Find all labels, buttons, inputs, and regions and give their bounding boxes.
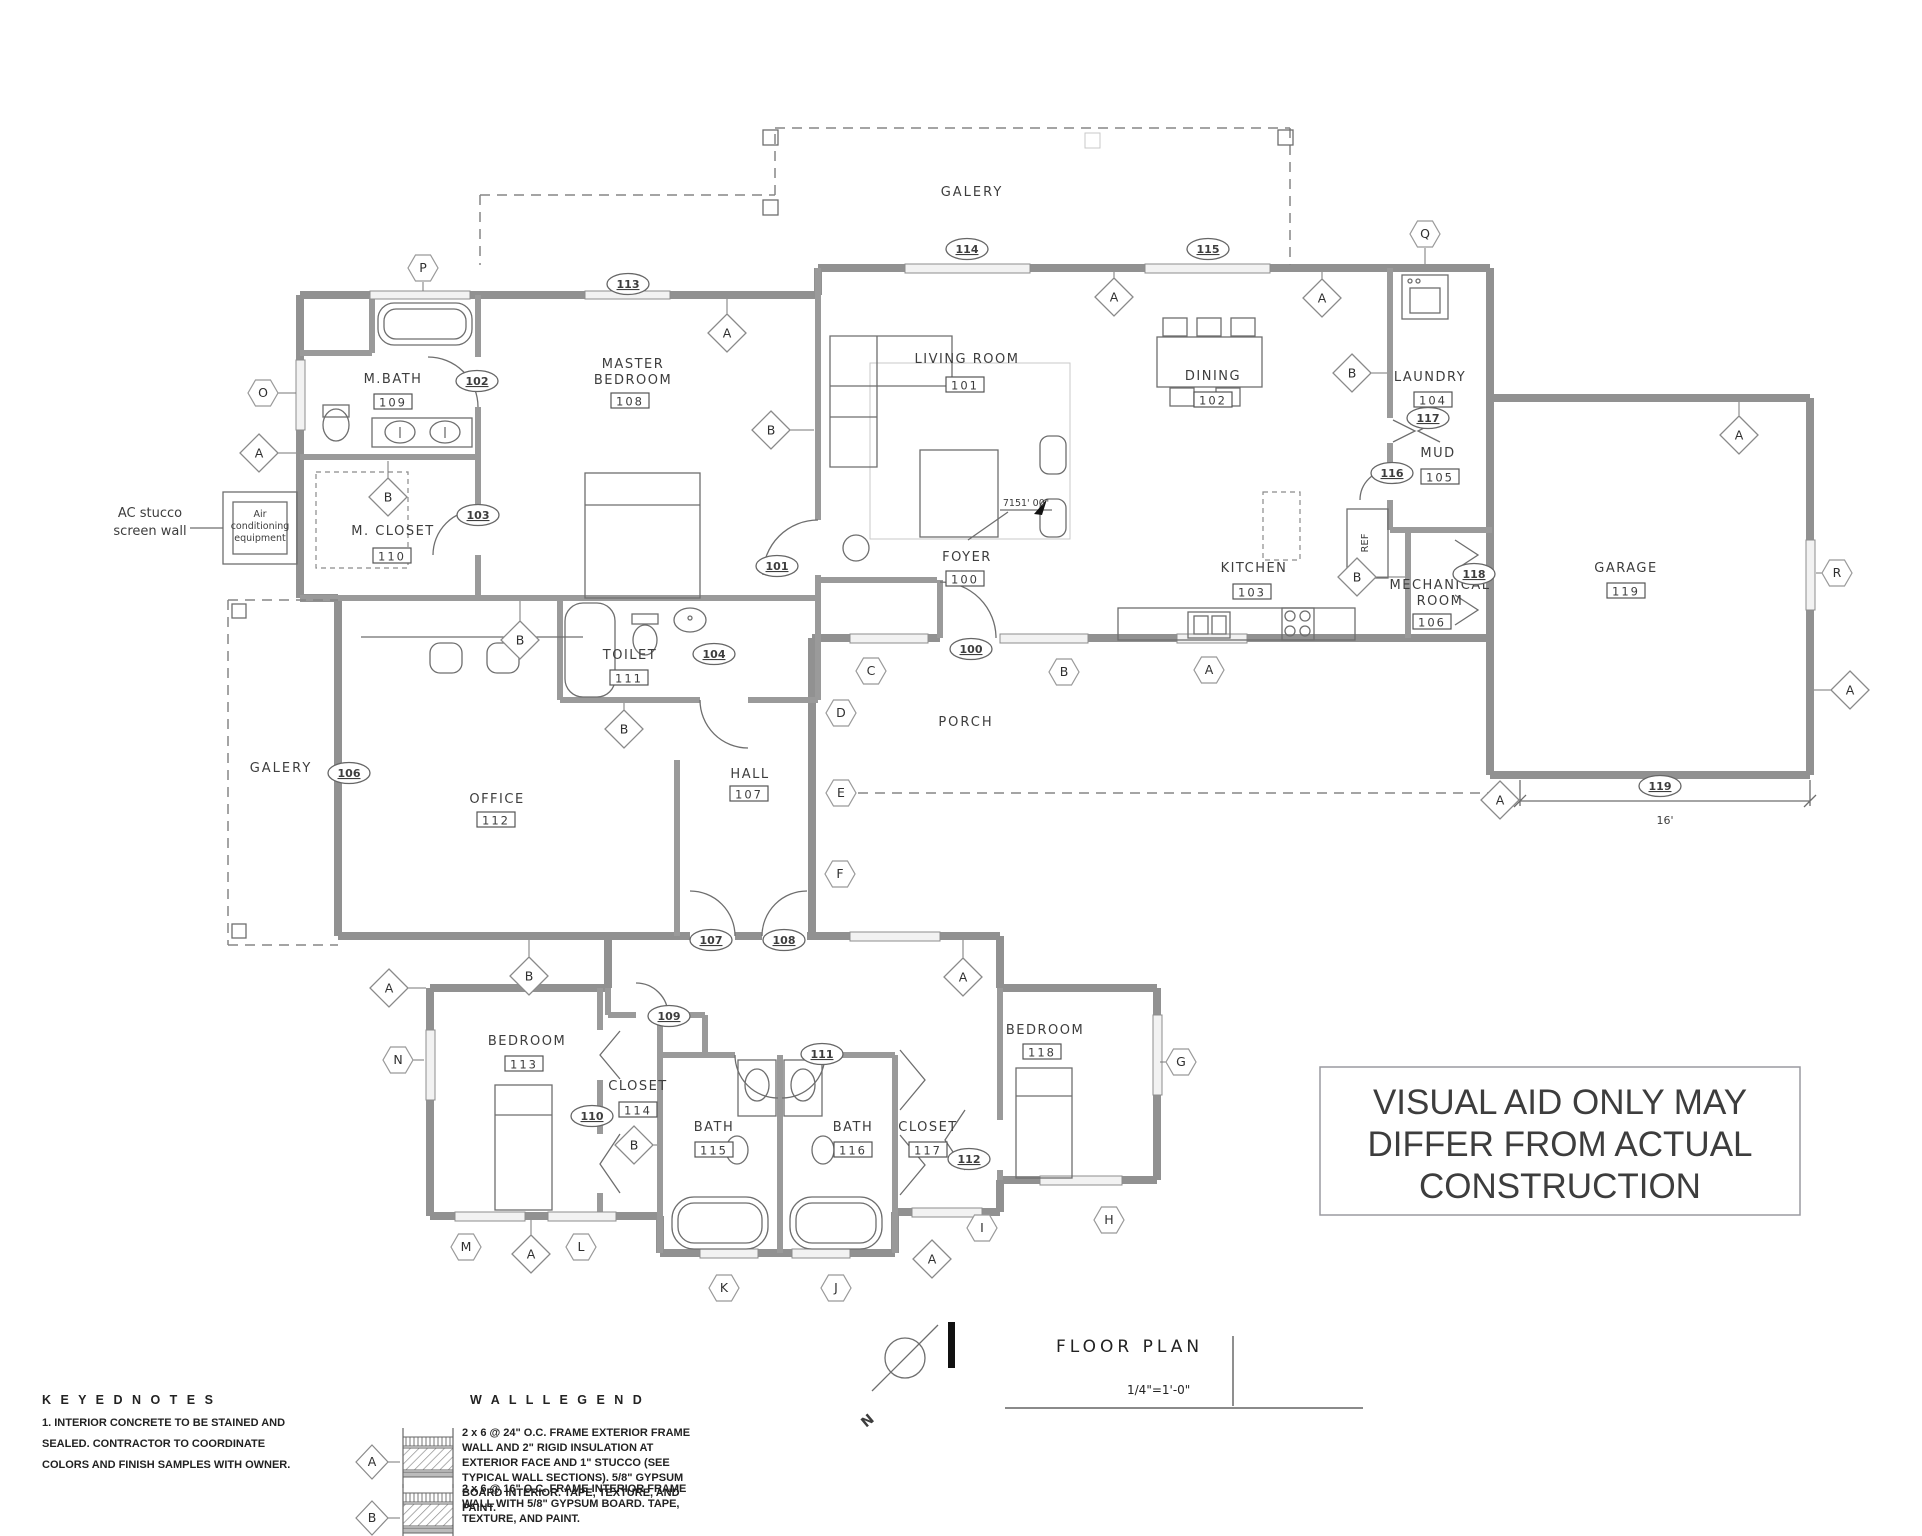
room-number: 117 — [914, 1144, 942, 1158]
room-name: M.BATH — [364, 372, 423, 387]
door-tag-number: 119 — [1649, 780, 1672, 793]
door-tag-114: 114 — [946, 239, 988, 260]
marker-letter: B — [368, 1510, 377, 1525]
room-labels: LIVING ROOM101DINING102KITCHEN103LAUNDRY… — [351, 352, 1657, 1158]
door-tag-number: 102 — [466, 375, 489, 388]
marker-letter: B — [630, 1138, 639, 1153]
marker-letter: R — [1833, 565, 1842, 580]
marker-letter: M — [461, 1239, 472, 1254]
wall-type-marker-a: A — [1095, 272, 1133, 316]
wall-type-marker-a: A — [913, 1240, 951, 1278]
marker-letter: E — [837, 785, 845, 800]
room-name: GARAGE — [1594, 561, 1657, 576]
door-tag-108: 108 — [763, 930, 805, 951]
label-galery: GALERY — [250, 761, 313, 776]
keyed-note-line: COLORS AND FINISH SAMPLES WITH OWNER. — [42, 1459, 290, 1471]
room-label-117: CLOSET117 — [898, 1120, 958, 1158]
label-16-: 16' — [1656, 814, 1673, 827]
disclaimer-note: VISUAL AID ONLY MAY DIFFER FROM ACTUAL C… — [1320, 1067, 1800, 1215]
wall-legend-header: W A L L L E G E N D — [470, 1393, 645, 1407]
elevation-marker-g: G — [1160, 1049, 1196, 1075]
marker-letter: B — [620, 722, 629, 737]
door-tag-number: 103 — [467, 509, 490, 522]
room-name: DINING — [1185, 369, 1241, 384]
label-porch: PORCH — [938, 715, 993, 730]
title-block: FLOOR PLAN 1/4"=1'-0" — [1005, 1336, 1363, 1408]
swatch-stucco — [403, 1493, 453, 1502]
label-screen-wall: screen wall — [113, 524, 186, 539]
door-tag-number: 104 — [703, 648, 726, 661]
elevation-marker-q: Q — [1410, 221, 1440, 264]
marker-letter: A — [1205, 662, 1214, 677]
elevation-marker-c: C — [856, 658, 886, 684]
label-7151-00-: 7151' 00" — [1003, 498, 1049, 509]
marker-letter: A — [368, 1454, 377, 1469]
room-label-106: MECHANICALROOM106 — [1390, 578, 1491, 630]
marker-letter: P — [419, 260, 427, 275]
label-ac-stucco: AC stucco — [118, 506, 182, 521]
room-label-110: M. CLOSET110 — [351, 524, 434, 564]
marker-letter: A — [527, 1247, 536, 1262]
room-name: BEDROOM — [1006, 1023, 1084, 1038]
room-number: 106 — [1418, 616, 1446, 630]
elevation-marker-o: O — [248, 380, 296, 406]
door-tag-number: 106 — [338, 767, 361, 780]
door-tag-number: 115 — [1197, 243, 1220, 256]
keyed-note-line: SEALED. CONTRACTOR TO COORDINATE — [42, 1438, 265, 1450]
label-conditioning: conditioning — [231, 521, 290, 532]
marker-letter: B — [1348, 366, 1357, 381]
marker-letter: A — [1496, 793, 1505, 808]
interior-walls — [300, 268, 1492, 1253]
room-name: BATH — [694, 1120, 735, 1135]
marker-letter: B — [525, 969, 534, 984]
room-number: 111 — [615, 672, 643, 686]
marker-letter: A — [255, 446, 264, 461]
door-tag-number: 101 — [766, 560, 789, 573]
marker-letter: Q — [1420, 226, 1430, 241]
marker-letter: B — [384, 490, 393, 505]
marker-letter: A — [928, 1252, 937, 1267]
room-name: LAUNDRY — [1394, 370, 1466, 385]
swatch-stucco — [403, 1437, 453, 1446]
door-tag-number: 109 — [658, 1010, 681, 1023]
wall-legend-item-b: B2 x 6 @ 16" O.C. FRAME INTERIOR FRAMEWA… — [356, 1483, 686, 1536]
label-ref: REF — [1360, 533, 1371, 552]
wall-type-marker-b: B — [1333, 354, 1387, 392]
marker-letter: F — [836, 866, 843, 881]
dimension-garage — [968, 499, 1816, 807]
wall-legend-text-line: WALL WITH 5/8" GYPSUM BOARD. TAPE, — [462, 1498, 680, 1510]
door-tag-104: 104 — [693, 644, 735, 665]
door-tag-119: 119 — [1639, 776, 1681, 797]
room-name: FOYER — [942, 550, 992, 565]
swatch-framing — [403, 1448, 453, 1470]
room-name: OFFICE — [469, 792, 524, 807]
door-tag-113: 113 — [607, 274, 649, 295]
marker-letter: G — [1176, 1054, 1186, 1069]
marker-letter: A — [1846, 683, 1855, 698]
room-label-118: BEDROOM118 — [1006, 1023, 1084, 1060]
door-tag-101: 101 — [756, 556, 798, 577]
north-label: N — [858, 1411, 877, 1431]
wall-type-marker-a: A — [1303, 272, 1341, 317]
wall-type-marker-b: B — [752, 411, 814, 449]
plain-labels: GALERYGALERYPORCHREF7151' 00"16'AC stucc… — [113, 185, 1673, 827]
disclaimer-line-3: CONSTRUCTION — [1419, 1167, 1701, 1206]
elevation-marker-b: B — [1049, 659, 1079, 685]
marker-letter: J — [833, 1280, 838, 1295]
door-tag-112: 112 — [948, 1149, 990, 1170]
elevation-marker-p: P — [408, 255, 438, 291]
wall-type-marker-b: B — [615, 1126, 657, 1164]
room-label-111: TOILET111 — [602, 648, 657, 686]
north-compass: N — [858, 1322, 955, 1431]
door-tag-116: 116 — [1371, 463, 1413, 484]
door-number-tags: 1001011021031041061071081091101111121131… — [328, 239, 1681, 1170]
marker-letter: N — [393, 1052, 402, 1067]
keyed-notes-header: K E Y E D N O T E S — [42, 1393, 216, 1407]
marker-letter: I — [980, 1220, 984, 1235]
elevation-marker-i: I — [967, 1215, 997, 1241]
door-tag-102: 102 — [456, 371, 498, 392]
room-name: BEDROOM — [594, 373, 672, 388]
room-name: BATH — [833, 1120, 874, 1135]
door-tag-number: 111 — [811, 1048, 834, 1061]
door-tag-number: 118 — [1463, 568, 1486, 581]
room-number: 113 — [510, 1058, 538, 1072]
room-label-104: LAUNDRY104 — [1394, 370, 1466, 408]
elevation-marker-r: R — [1816, 560, 1852, 586]
room-name: M. CLOSET — [351, 524, 434, 539]
door-tag-number: 117 — [1417, 412, 1440, 425]
room-number: 100 — [951, 573, 979, 587]
room-name: LIVING ROOM — [915, 352, 1020, 367]
wall-type-marker-a: A — [1814, 671, 1869, 709]
wall-type-marker-a: A — [512, 1220, 550, 1273]
wall-legend-text-line: EXTERIOR FACE AND 1" STUCCO (SEE — [462, 1457, 670, 1469]
marker-letter: A — [723, 326, 732, 341]
marker-letter: D — [836, 705, 846, 720]
room-number: 112 — [482, 814, 510, 828]
door-tag-100: 100 — [950, 639, 992, 660]
floor-plan-drawing: N FLOOR PLAN 1/4"=1'-0" VISUAL AID ONLY … — [0, 0, 1922, 1536]
door-tag-118: 118 — [1453, 564, 1495, 585]
marker-letter: A — [385, 981, 394, 996]
compass-bar — [948, 1322, 955, 1368]
room-label-100: FOYER100 — [942, 550, 992, 587]
disclaimer-line-2: DIFFER FROM ACTUAL — [1367, 1125, 1752, 1164]
elevation-marker-d: D — [826, 700, 856, 726]
room-name: BEDROOM — [488, 1034, 566, 1049]
room-label-107: HALL107 — [730, 767, 770, 802]
marker-letter: C — [867, 663, 876, 678]
marker-letter: B — [1060, 664, 1069, 679]
door-tag-117: 117 — [1407, 408, 1449, 429]
wall-legend-text-line: 2 x 6 @ 24" O.C. FRAME EXTERIOR FRAME — [462, 1427, 690, 1439]
door-tag-115: 115 — [1187, 239, 1229, 260]
door-tag-number: 113 — [617, 278, 640, 291]
door-tag-number: 110 — [581, 1110, 604, 1123]
sheet-scale: 1/4"=1'-0" — [1127, 1383, 1190, 1397]
room-label-116: BATH116 — [833, 1120, 874, 1158]
wall-type-marker-a: A — [370, 969, 426, 1007]
room-number: 115 — [700, 1144, 728, 1158]
marker-letter: K — [720, 1280, 729, 1295]
marker-letter: B — [767, 423, 776, 438]
room-number: 104 — [1419, 394, 1447, 408]
wall-type-marker-a: A — [1481, 781, 1519, 819]
door-tag-110: 110 — [571, 1106, 613, 1127]
door-tag-111: 111 — [801, 1044, 843, 1065]
room-name: KITCHEN — [1221, 561, 1288, 576]
marker-letter: L — [578, 1239, 585, 1254]
door-tag-103: 103 — [457, 505, 499, 526]
marker-letter: A — [1110, 290, 1119, 305]
door-tag-number: 100 — [960, 643, 983, 656]
label-galery: GALERY — [941, 185, 1004, 200]
room-label-119: GARAGE119 — [1594, 561, 1657, 599]
room-label-109: M.BATH109 — [364, 372, 423, 410]
marker-letter: H — [1104, 1212, 1113, 1227]
wall-type-marker-b: B — [501, 601, 539, 659]
room-name: TOILET — [602, 648, 657, 663]
room-number: 108 — [616, 395, 644, 409]
room-number: 102 — [1199, 394, 1227, 408]
elevation-marker-f: F — [825, 861, 855, 887]
room-number: 109 — [379, 396, 407, 410]
room-name: HALL — [730, 767, 769, 782]
elevation-marker-m: M — [451, 1234, 481, 1260]
elevation-marker-n: N — [383, 1047, 424, 1073]
marker-letter: B — [516, 633, 525, 648]
room-number: 118 — [1028, 1046, 1056, 1060]
room-number: 103 — [1238, 586, 1266, 600]
room-label-108: MASTERBEDROOM108 — [594, 357, 672, 409]
door-tag-107: 107 — [690, 930, 732, 951]
door-tag-106: 106 — [328, 763, 370, 784]
swatch-framing — [403, 1504, 453, 1526]
room-number: 116 — [839, 1144, 867, 1158]
door-tag-number: 116 — [1381, 467, 1404, 480]
keyed-notes: K E Y E D N O T E S1. INTERIOR CONCRETE … — [42, 1393, 290, 1471]
room-number: 101 — [951, 379, 979, 393]
elevation-marker-e: E — [826, 780, 856, 806]
room-number: 114 — [624, 1104, 652, 1118]
room-label-105: MUD105 — [1420, 446, 1459, 485]
door-tag-number: 107 — [700, 934, 723, 947]
room-label-103: KITCHEN103 — [1221, 561, 1288, 600]
marker-letter: B — [1353, 570, 1362, 585]
wall-type-marker-a: A — [708, 299, 746, 352]
room-label-113: BEDROOM113 — [488, 1034, 566, 1072]
marker-letter: O — [258, 385, 268, 400]
wall-type-marker-a: A — [1720, 402, 1758, 454]
swatch-board — [403, 1528, 453, 1533]
elevation-marker-a: A — [1194, 657, 1224, 683]
room-name: MASTER — [602, 357, 665, 372]
room-name: MUD — [1420, 446, 1455, 461]
wall-legend-text-line: WALL AND 2" RIGID INSULATION AT — [462, 1442, 654, 1454]
room-number: 105 — [1426, 471, 1454, 485]
disclaimer-line-1: VISUAL AID ONLY MAY — [1373, 1083, 1747, 1122]
room-label-112: OFFICE112 — [469, 792, 524, 828]
elevation-marker-j: J — [821, 1275, 851, 1301]
door-tag-number: 108 — [773, 934, 796, 947]
wall-type-marker-a: A — [240, 434, 296, 472]
room-number: 110 — [378, 550, 406, 564]
wall-legend-text-line: TEXTURE, AND PAINT. — [462, 1513, 580, 1525]
room-number: 107 — [735, 788, 763, 802]
room-name: CLOSET — [898, 1120, 958, 1135]
sheet-title: FLOOR PLAN — [1056, 1337, 1203, 1357]
door-tag-109: 109 — [648, 1006, 690, 1027]
elevation-marker-k: K — [709, 1275, 739, 1301]
elevation-marker-l: L — [566, 1234, 596, 1260]
wall-type-marker-b: B — [369, 461, 407, 516]
room-name: CLOSET — [608, 1079, 668, 1094]
room-number: 119 — [1612, 585, 1640, 599]
room-label-115: BATH115 — [694, 1120, 735, 1158]
label-air: Air — [253, 509, 266, 520]
wall-legend: W A L L L E G E N DA2 x 6 @ 24" O.C. FRA… — [356, 1393, 690, 1536]
marker-letter: A — [1318, 291, 1327, 306]
swatch-board — [403, 1472, 453, 1477]
elevation-marker-h: H — [1094, 1207, 1124, 1233]
room-name: ROOM — [1417, 594, 1464, 609]
wall-type-marker-b: B — [605, 703, 643, 748]
keyed-note-line: 1. INTERIOR CONCRETE TO BE STAINED AND — [42, 1417, 285, 1429]
door-tag-number: 112 — [958, 1153, 981, 1166]
floor-plan-sheet: N FLOOR PLAN 1/4"=1'-0" VISUAL AID ONLY … — [0, 0, 1922, 1536]
marker-letter: A — [959, 970, 968, 985]
marker-letter: A — [1735, 428, 1744, 443]
door-tag-number: 114 — [956, 243, 979, 256]
wall-legend-text-line: 2 x 6 @ 16" O.C. FRAME INTERIOR FRAME — [462, 1483, 686, 1495]
label-equipment: equipment — [234, 533, 286, 544]
wall-type-marker-a: A — [944, 940, 982, 996]
